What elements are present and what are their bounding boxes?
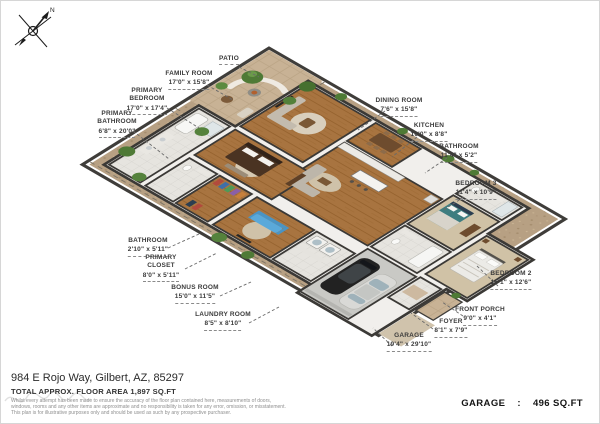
- room-dimensions: 8'0" x 5'11": [143, 272, 180, 282]
- room-dimensions: 8'5" x 8'10": [205, 320, 242, 330]
- room-name: LAUNDRY ROOM: [195, 311, 251, 319]
- garage-summary-label: GARAGE: [461, 398, 505, 409]
- room-label-garage: GARAGE 19'4" x 29'10": [387, 332, 432, 352]
- floor-plan-page: N: [0, 0, 600, 424]
- property-address: 984 E Rojo Way, Gilbert, AZ, 85297: [11, 372, 184, 384]
- room-label-patio: PATIO: [219, 55, 239, 65]
- room-label-laundry-room: LAUNDRY ROOM 8'5" x 8'10": [195, 311, 251, 331]
- room-label-bedroom-3: BEDROOM 3 11'4" x 10'9": [455, 180, 496, 200]
- disclaimer-text: Whilst every attempt has been made to en…: [11, 399, 286, 417]
- compass-north-label: N: [50, 7, 55, 14]
- room-name: DINING ROOM: [376, 97, 423, 105]
- room-name: KITCHEN: [411, 122, 448, 130]
- total-floor-area: TOTAL APPROX. FLOOR AREA 1,897 SQ.FT: [11, 387, 176, 396]
- room-name: PATIO: [219, 55, 239, 65]
- garage-area-summary: GARAGE:496 SQ.FT: [461, 398, 583, 409]
- room-label-bonus-room: BONUS ROOM 15'0" x 11'5": [171, 284, 219, 304]
- room-dimensions: 11'4" x 5'2": [441, 152, 478, 162]
- compass-icon: N: [15, 7, 55, 47]
- room-label-family-room: FAMILY ROOM 17'0" x 15'8": [165, 70, 212, 90]
- room-dimensions: 9'0" x 4'1": [463, 315, 496, 325]
- room-label-foyer: FOYER 8'1" x 7'9": [434, 318, 467, 338]
- room-dimensions: 7'6" x 15'8": [381, 106, 418, 116]
- floor-plan-rendering: N: [1, 1, 600, 424]
- room-label-bathroom-1: BATHROOM 11'4" x 5'2": [439, 143, 478, 163]
- room-name: BATHROOM: [128, 237, 168, 245]
- room-dimensions: 17'0" x 15'8": [169, 79, 210, 89]
- room-dimensions: 6'8" x 20'0": [99, 128, 136, 138]
- room-label-kitchen: KITCHEN 16'0" x 8'8": [411, 122, 448, 142]
- room-label-dining-room: DINING ROOM 7'6" x 15'8": [376, 97, 423, 117]
- disclaimer-line: This plan is for illustrative purposes o…: [11, 411, 286, 417]
- room-name: FAMILY ROOM: [165, 70, 212, 78]
- garage-summary-separator: :: [517, 398, 521, 409]
- room-name: FRONT PORCH: [455, 306, 505, 314]
- room-name: BATHROOM: [439, 143, 478, 151]
- room-dimensions: 16'0" x 8'8": [411, 131, 448, 141]
- room-name: BEDROOM 3: [455, 180, 496, 188]
- room-dimensions: 8'1" x 7'9": [434, 327, 467, 337]
- room-name: PRIMARY BEDROOM: [122, 87, 172, 104]
- room-name: GARAGE: [387, 332, 432, 340]
- room-dimensions: 15'0" x 11'5": [175, 293, 215, 303]
- room-dimensions: 19'4" x 29'10": [387, 341, 432, 351]
- room-dimensions: 11'4" x 10'9": [456, 189, 496, 199]
- room-label-bedroom-2: BEDROOM 2 15'1" x 12'6": [490, 270, 531, 290]
- room-label-primary-closet: PRIMARY CLOSET 8'0" x 5'11": [136, 254, 186, 282]
- room-name: BONUS ROOM: [171, 284, 219, 292]
- room-name: BEDROOM 2: [490, 270, 531, 278]
- room-label-primary-bathroom: PRIMARY BATHROOM 6'8" x 20'0": [92, 110, 142, 138]
- room-name: PRIMARY CLOSET: [136, 254, 186, 271]
- room-name: FOYER: [434, 318, 467, 326]
- garage-summary-value: 496 SQ.FT: [533, 398, 583, 409]
- room-name: PRIMARY BATHROOM: [92, 110, 142, 127]
- room-dimensions: 15'1" x 12'6": [491, 279, 532, 289]
